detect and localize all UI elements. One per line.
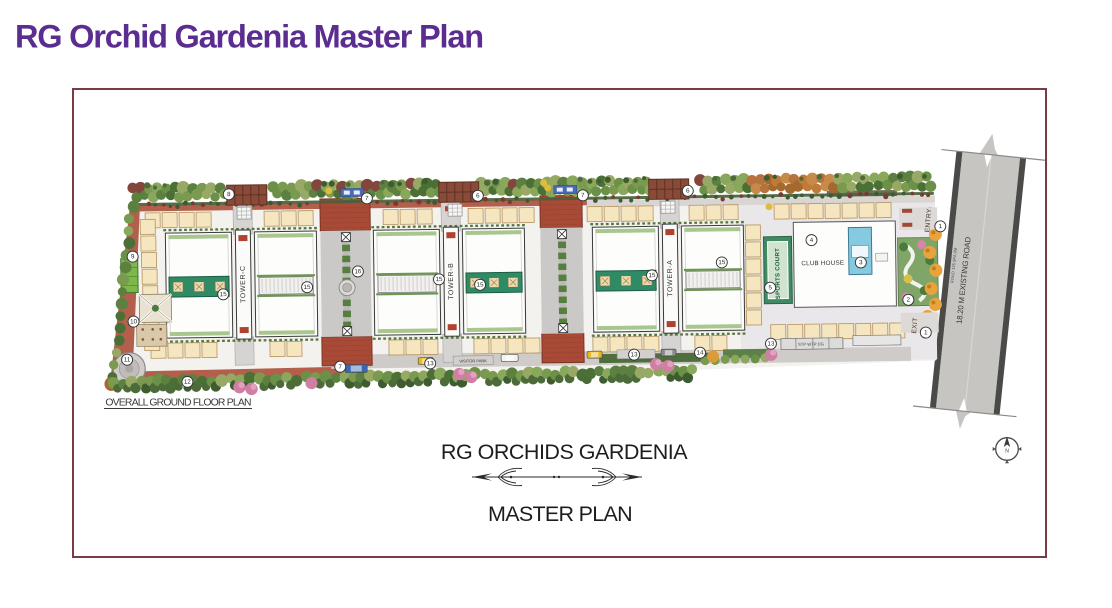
svg-text:13: 13 xyxy=(631,351,639,358)
svg-text:14: 14 xyxy=(697,349,705,356)
svg-text:10: 10 xyxy=(130,318,138,325)
svg-text:STP WTP DG: STP WTP DG xyxy=(798,341,824,346)
svg-text:TOWER-B: TOWER-B xyxy=(448,263,456,300)
svg-text:TOWER-A: TOWER-A xyxy=(667,259,675,296)
svg-text:TOWER-C: TOWER-C xyxy=(240,265,248,303)
svg-text:15: 15 xyxy=(477,282,485,289)
svg-text:MASTER PLAN: MASTER PLAN xyxy=(488,502,632,526)
svg-text:RG ORCHIDS GARDENIA: RG ORCHIDS GARDENIA xyxy=(441,440,688,464)
svg-text:EXIT: EXIT xyxy=(911,317,919,334)
svg-text:CLUB HOUSE: CLUB HOUSE xyxy=(801,260,844,268)
svg-text:13: 13 xyxy=(427,360,435,367)
svg-text:12: 12 xyxy=(184,379,192,386)
svg-text:OVERALL GROUND FLOOR PLAN: OVERALL GROUND FLOOR PLAN xyxy=(105,398,251,409)
svg-text:SPORTS COURT: SPORTS COURT xyxy=(775,248,782,299)
svg-text:11: 11 xyxy=(124,356,131,363)
svg-text:N: N xyxy=(1005,449,1009,455)
svg-text:15: 15 xyxy=(436,276,444,283)
svg-text:VISITOR PARK: VISITOR PARK xyxy=(459,358,487,363)
svg-text:13: 13 xyxy=(767,340,775,347)
svg-text:15: 15 xyxy=(648,272,656,279)
svg-text:15: 15 xyxy=(718,259,726,266)
svg-text:15: 15 xyxy=(220,291,228,298)
svg-text:16: 16 xyxy=(354,268,362,275)
svg-text:15: 15 xyxy=(304,284,312,291)
svg-text:RG Orchid Gardenia Master Plan: RG Orchid Gardenia Master Plan xyxy=(15,19,483,55)
